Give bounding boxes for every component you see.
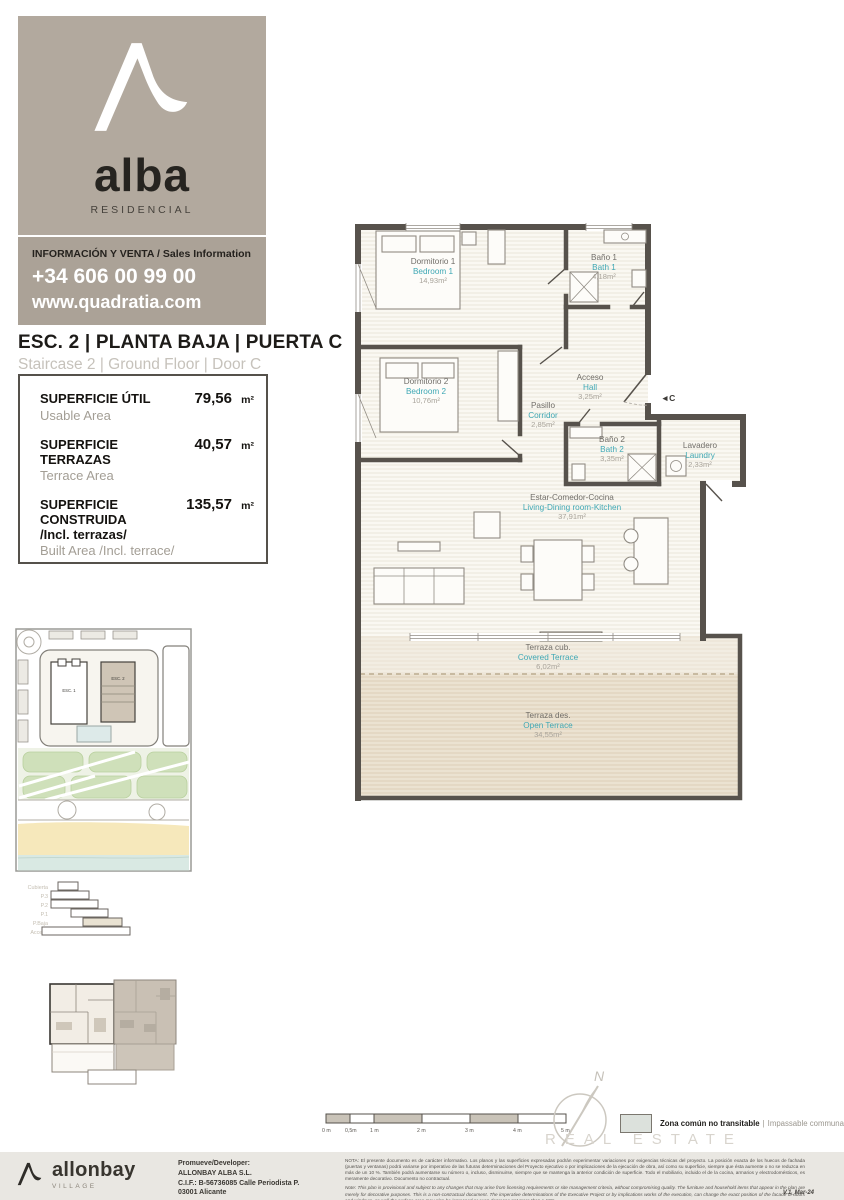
brand-logo-block: alba RESIDENCIAL — [18, 16, 266, 235]
svg-text:34,55m²: 34,55m² — [534, 730, 562, 739]
level-label-pbaja: P.Baja — [33, 921, 48, 927]
real-estate-watermark: REAL ESTATE — [545, 1131, 743, 1148]
svg-text:10,76m²: 10,76m² — [412, 396, 440, 405]
unit-title-en: Staircase 2 | Ground Floor | Door C — [18, 356, 348, 374]
terrace-area-label-en: Terrace Area — [40, 468, 254, 483]
terrace-area-label-es: SUPERFICIE TERRAZAS — [40, 437, 182, 467]
svg-text:Corridor: Corridor — [528, 411, 558, 420]
svg-text:Pasillo: Pasillo — [531, 401, 556, 410]
svg-text:Covered Terrace: Covered Terrace — [518, 653, 579, 662]
usable-area-value: 79,56 — [182, 390, 232, 407]
usable-area-label-en: Usable Area — [40, 408, 254, 423]
svg-text:3 m: 3 m — [465, 1128, 474, 1134]
svg-text:1 m: 1 m — [370, 1128, 379, 1134]
site-map: ESC. 1 ESC. 2 — [15, 628, 192, 872]
plan-version: V.1_Mar-24 — [783, 1190, 814, 1196]
label-bath-2: Baño 2 Bath 2 3,35m² — [599, 435, 625, 463]
svg-text:Living-Dining room-Kitchen: Living-Dining room-Kitchen — [523, 503, 622, 512]
svg-text:Dormitorio 1: Dormitorio 1 — [411, 257, 456, 266]
svg-text:4 m: 4 m — [513, 1128, 522, 1134]
level-label-p3: P.3 — [41, 894, 48, 900]
built-area-value: 135,57 — [182, 496, 232, 513]
unit-title-es: ESC. 2 | PLANTA BAJA | PUERTA C — [18, 332, 348, 354]
svg-text:Baño 2: Baño 2 — [599, 435, 625, 444]
built-area-row: SUPERFICIE CONSTRUIDA 135,57 m² /Incl. t… — [40, 496, 254, 558]
key-plan-other-unit — [114, 980, 176, 1070]
built-area-label-es2: /Incl. terrazas/ — [40, 527, 254, 542]
key-plan-this-unit — [50, 984, 114, 1072]
svg-text:0 m: 0 m — [322, 1128, 331, 1134]
terrace-area-row: SUPERFICIE TERRAZAS 40,57 m² Terrace Are… — [40, 436, 254, 483]
building-esc2: ESC. 2 — [101, 662, 135, 722]
footer-bar: allonbay VILLAGE Promueve/Developer: ALL… — [0, 1152, 844, 1200]
usable-area-unit: m² — [232, 394, 254, 406]
alba-logo-icon — [88, 28, 206, 146]
gardens — [18, 748, 189, 800]
svg-text:Bath 2: Bath 2 — [600, 445, 624, 454]
svg-text:3,35m²: 3,35m² — [600, 454, 624, 463]
legal-note-es: NOTA: El presente documento es de caráct… — [345, 1158, 805, 1182]
level-label-p1: P.1 — [41, 912, 48, 918]
svg-text:2,85m²: 2,85m² — [531, 420, 555, 429]
phone-number: +34 606 00 99 00 — [32, 265, 252, 289]
allonbay-wordmark: allonbay — [52, 1159, 136, 1182]
level-diagram: Cubierta P.3 P.2 P.1 P.Baja Acceso — [18, 880, 168, 942]
svg-text:Bath 1: Bath 1 — [592, 263, 616, 272]
unit-heading: ESC. 2 | PLANTA BAJA | PUERTA C Staircas… — [18, 332, 348, 374]
svg-text:2,33m²: 2,33m² — [688, 460, 712, 469]
legal-notes: NOTA: El presente documento es de caráct… — [345, 1158, 805, 1200]
svg-text:Bedroom 2: Bedroom 2 — [406, 387, 446, 396]
brand-tagline: RESIDENCIAL — [18, 204, 266, 216]
level-label-cubierta: Cubierta — [28, 885, 48, 891]
svg-text:14,93m²: 14,93m² — [419, 276, 447, 285]
svg-text:Lavadero: Lavadero — [683, 441, 718, 450]
usable-area-row: SUPERFICIE ÚTIL 79,56 m² Usable Area — [40, 390, 254, 423]
key-plan — [36, 972, 226, 1090]
built-area-label-en: Built Area /Incl. terrace/ — [40, 543, 254, 558]
label-corridor: Pasillo Corridor 2,85m² — [528, 401, 558, 429]
allonbay-logo: allonbay VILLAGE — [16, 1158, 136, 1190]
level-label-p2: P.2 — [41, 903, 48, 909]
svg-text:0,5m: 0,5m — [345, 1128, 357, 1134]
terrace-area-value: 40,57 — [182, 436, 232, 453]
floor-plan: Dormitorio 1 Bedroom 1 14,93m² Baño 1 Ba… — [348, 212, 748, 804]
svg-text:37,91m²: 37,91m² — [558, 512, 586, 521]
pool — [77, 726, 111, 742]
svg-text:ESC. 2: ESC. 2 — [111, 676, 125, 681]
svg-text:6,02m²: 6,02m² — [536, 662, 560, 671]
roundabout — [17, 630, 41, 654]
allonbay-village-label: VILLAGE — [52, 1183, 136, 1190]
built-area-unit: m² — [232, 500, 254, 512]
svg-text:Baño 1: Baño 1 — [591, 253, 617, 262]
svg-text:Open Terrace: Open Terrace — [523, 721, 573, 730]
svg-text:3,25m²: 3,25m² — [578, 392, 602, 401]
legend-label-en: Impassable communal area — [768, 1119, 844, 1128]
developer-info: Promueve/Developer: ALLONBAY ALBA S.L. C… — [178, 1159, 299, 1198]
brand-contact-block: INFORMACIÓN Y VENTA / Sales Information … — [18, 237, 266, 325]
building-esc1: ESC. 1 — [51, 659, 87, 724]
allonbay-logo-icon — [16, 1158, 46, 1190]
svg-text:Acceso: Acceso — [577, 373, 604, 382]
svg-text:Terraza cub.: Terraza cub. — [525, 643, 570, 652]
terrace-area-unit: m² — [232, 440, 254, 452]
svg-text:Terraza des.: Terraza des. — [525, 711, 570, 720]
svg-text:Dormitorio 2: Dormitorio 2 — [404, 377, 449, 386]
brochure-page: alba RESIDENCIAL INFORMACIÓN Y VENTA / S… — [0, 0, 844, 1200]
legend-label-es: Zona común no transitable — [660, 1119, 760, 1128]
road — [18, 800, 189, 820]
svg-text:Hall: Hall — [583, 383, 597, 392]
svg-text:2 m: 2 m — [417, 1128, 426, 1134]
door-c-marker: ◄C — [661, 393, 676, 403]
label-bath-1: Baño 1 Bath 1 4,18m² — [591, 253, 617, 281]
svg-text:Bedroom 1: Bedroom 1 — [413, 267, 453, 276]
brand-name: alba — [18, 148, 266, 202]
beach — [18, 822, 189, 855]
built-area-label-es: SUPERFICIE CONSTRUIDA — [40, 497, 182, 527]
north-label: N — [594, 1068, 605, 1084]
level-highlight-pbaja — [83, 918, 122, 926]
svg-text:ESC. 1: ESC. 1 — [62, 688, 76, 693]
usable-area-label-es: SUPERFICIE ÚTIL — [40, 391, 182, 406]
svg-text:Estar-Comedor-Cocina: Estar-Comedor-Cocina — [530, 493, 614, 502]
surface-areas-box: SUPERFICIE ÚTIL 79,56 m² Usable Area SUP… — [18, 374, 268, 564]
svg-text:4,18m²: 4,18m² — [592, 272, 616, 281]
key-plan-stair-core — [88, 1070, 136, 1084]
legal-note-en: Note: This plan is provisional and subje… — [345, 1185, 805, 1200]
website-url: www.quadratia.com — [32, 292, 252, 313]
sales-info-label: INFORMACIÓN Y VENTA / Sales Information — [32, 248, 252, 260]
brand-panel: alba RESIDENCIAL INFORMACIÓN Y VENTA / S… — [18, 16, 266, 325]
svg-text:Laundry: Laundry — [685, 451, 715, 460]
